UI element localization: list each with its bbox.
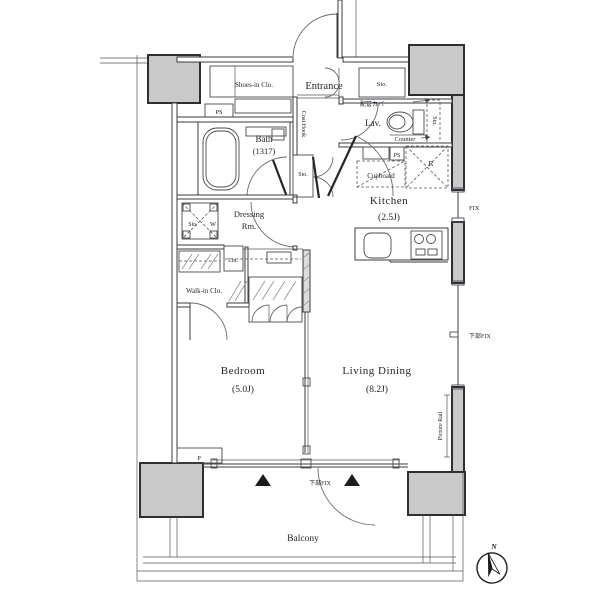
lav-cabinet xyxy=(363,147,389,159)
bathtub-inner xyxy=(206,131,236,187)
label-walk-in-closet: Walk-in Clo. xyxy=(186,287,222,295)
sliding-door-pull xyxy=(303,378,310,386)
compass xyxy=(473,549,510,587)
right-wall-lower xyxy=(452,387,464,472)
label-lav-storage: Sto. xyxy=(431,116,437,126)
burner xyxy=(427,235,436,244)
hatch-line xyxy=(273,281,285,300)
label-hall-storage: Sto. xyxy=(298,172,308,178)
burner xyxy=(415,235,424,244)
left-wall xyxy=(172,103,177,463)
label-linen: Lin. xyxy=(228,258,238,264)
label-kitchen: Kitchen xyxy=(370,195,408,207)
label-living-dining-size: (8.2J) xyxy=(366,384,388,395)
bath-fixture xyxy=(272,129,284,140)
label-dressing-2: Rm. xyxy=(242,221,256,231)
shoes-shelf xyxy=(235,99,291,113)
bedroom-door-arc xyxy=(190,303,227,340)
label-entrance: Entrance xyxy=(305,81,343,92)
label-coat-hook: Coat Hook xyxy=(300,111,306,137)
hatch-line xyxy=(262,281,274,300)
label-bath-size: (1317) xyxy=(253,146,276,156)
floor-plan: Shoes-in Clo. Entrance Sto. PS Bath (131… xyxy=(0,0,613,600)
counter-arrowhead xyxy=(425,135,430,140)
bath-bottom-wall xyxy=(177,195,297,199)
bathtub-outer xyxy=(203,128,239,190)
label-lower-fix-right: 下部FIX xyxy=(469,332,491,340)
column-bottom-right xyxy=(408,472,465,515)
wall-stub xyxy=(293,197,297,203)
hall-wall xyxy=(293,97,297,155)
right-wall-upper xyxy=(452,95,464,190)
dressing-bottom-wall xyxy=(177,245,224,249)
label-ps-top: PS xyxy=(215,109,223,116)
label-dressing-storage: Sto. xyxy=(188,222,198,228)
label-pipe-cover: 配管カバー xyxy=(360,100,390,108)
closet-door-arc xyxy=(252,305,269,322)
column-bottom-left xyxy=(140,463,203,517)
column-top-right xyxy=(409,45,464,95)
label-lower-fix-bottom: 下部FIX xyxy=(309,479,331,487)
wic-shelf xyxy=(179,251,220,272)
label-bath: Bath xyxy=(256,134,273,144)
wic-bottom-wall xyxy=(227,303,249,307)
hatch-line xyxy=(284,281,296,300)
storage-door-arc xyxy=(325,68,339,82)
partition xyxy=(303,250,310,454)
label-bedroom: Bedroom xyxy=(221,365,265,377)
opening-marker-triangle xyxy=(344,474,360,486)
label-entrance-storage: Sto. xyxy=(377,81,388,88)
label-dressing-1: Dressing xyxy=(234,209,265,219)
label-ps-kitchen: PS xyxy=(394,153,401,159)
right-wall-mid xyxy=(452,222,464,283)
hatch-line xyxy=(253,281,265,300)
hatch-line xyxy=(229,281,241,301)
bath-top-wall xyxy=(177,117,297,122)
kitchen-sink xyxy=(364,233,391,258)
toilet-bowl xyxy=(387,112,413,132)
label-kitchen-size: (2.5J) xyxy=(378,212,400,223)
floor-plan-drawing: Shoes-in Clo. Entrance Sto. PS Bath (131… xyxy=(0,0,613,600)
entrance-door-arc xyxy=(293,14,337,58)
opening-marker-triangle xyxy=(255,474,271,486)
bath-door-leaf xyxy=(273,160,287,197)
label-picture-rail: Picture Rail xyxy=(438,411,444,440)
top-wall-right xyxy=(343,57,409,62)
upper-cabinet xyxy=(267,252,291,263)
grill xyxy=(416,249,425,255)
label-fix-right: FIX xyxy=(469,205,480,212)
lavatory-area xyxy=(339,97,452,159)
closet-door-arc xyxy=(270,305,287,322)
sliding-door-jamb xyxy=(303,446,310,454)
label-north: N xyxy=(490,542,497,551)
label-living-dining: Living Dining xyxy=(342,365,411,377)
closet-door-arc xyxy=(287,307,302,322)
bath-door-arc xyxy=(247,157,287,197)
toilet-tank xyxy=(413,110,424,134)
window-mullion xyxy=(450,332,458,337)
grill xyxy=(428,249,437,255)
label-balcony: Balcony xyxy=(287,534,319,544)
label-cupboard: Cupboard xyxy=(367,172,395,180)
toilet-seat xyxy=(389,115,405,129)
label-counter: Counter xyxy=(395,136,417,143)
label-shoes-closet: Shoes-in Clo. xyxy=(235,81,273,89)
south-windows xyxy=(177,448,408,525)
wall-stub xyxy=(293,246,297,250)
label-pipe: P xyxy=(197,455,201,462)
label-bedroom-size: (5.0J) xyxy=(232,384,254,395)
corridor-wall xyxy=(338,0,342,58)
label-lav: Lav. xyxy=(365,118,381,128)
wic-bottom-wall xyxy=(177,303,190,307)
label-refrigerator: R xyxy=(428,159,433,168)
lav-wall-stub xyxy=(339,97,343,104)
wic-right-wall xyxy=(245,247,248,307)
top-wall-left xyxy=(177,57,293,62)
balcony-door-arc xyxy=(318,468,375,525)
lav-bottom-wall xyxy=(339,143,452,147)
label-washer: W xyxy=(210,221,217,228)
